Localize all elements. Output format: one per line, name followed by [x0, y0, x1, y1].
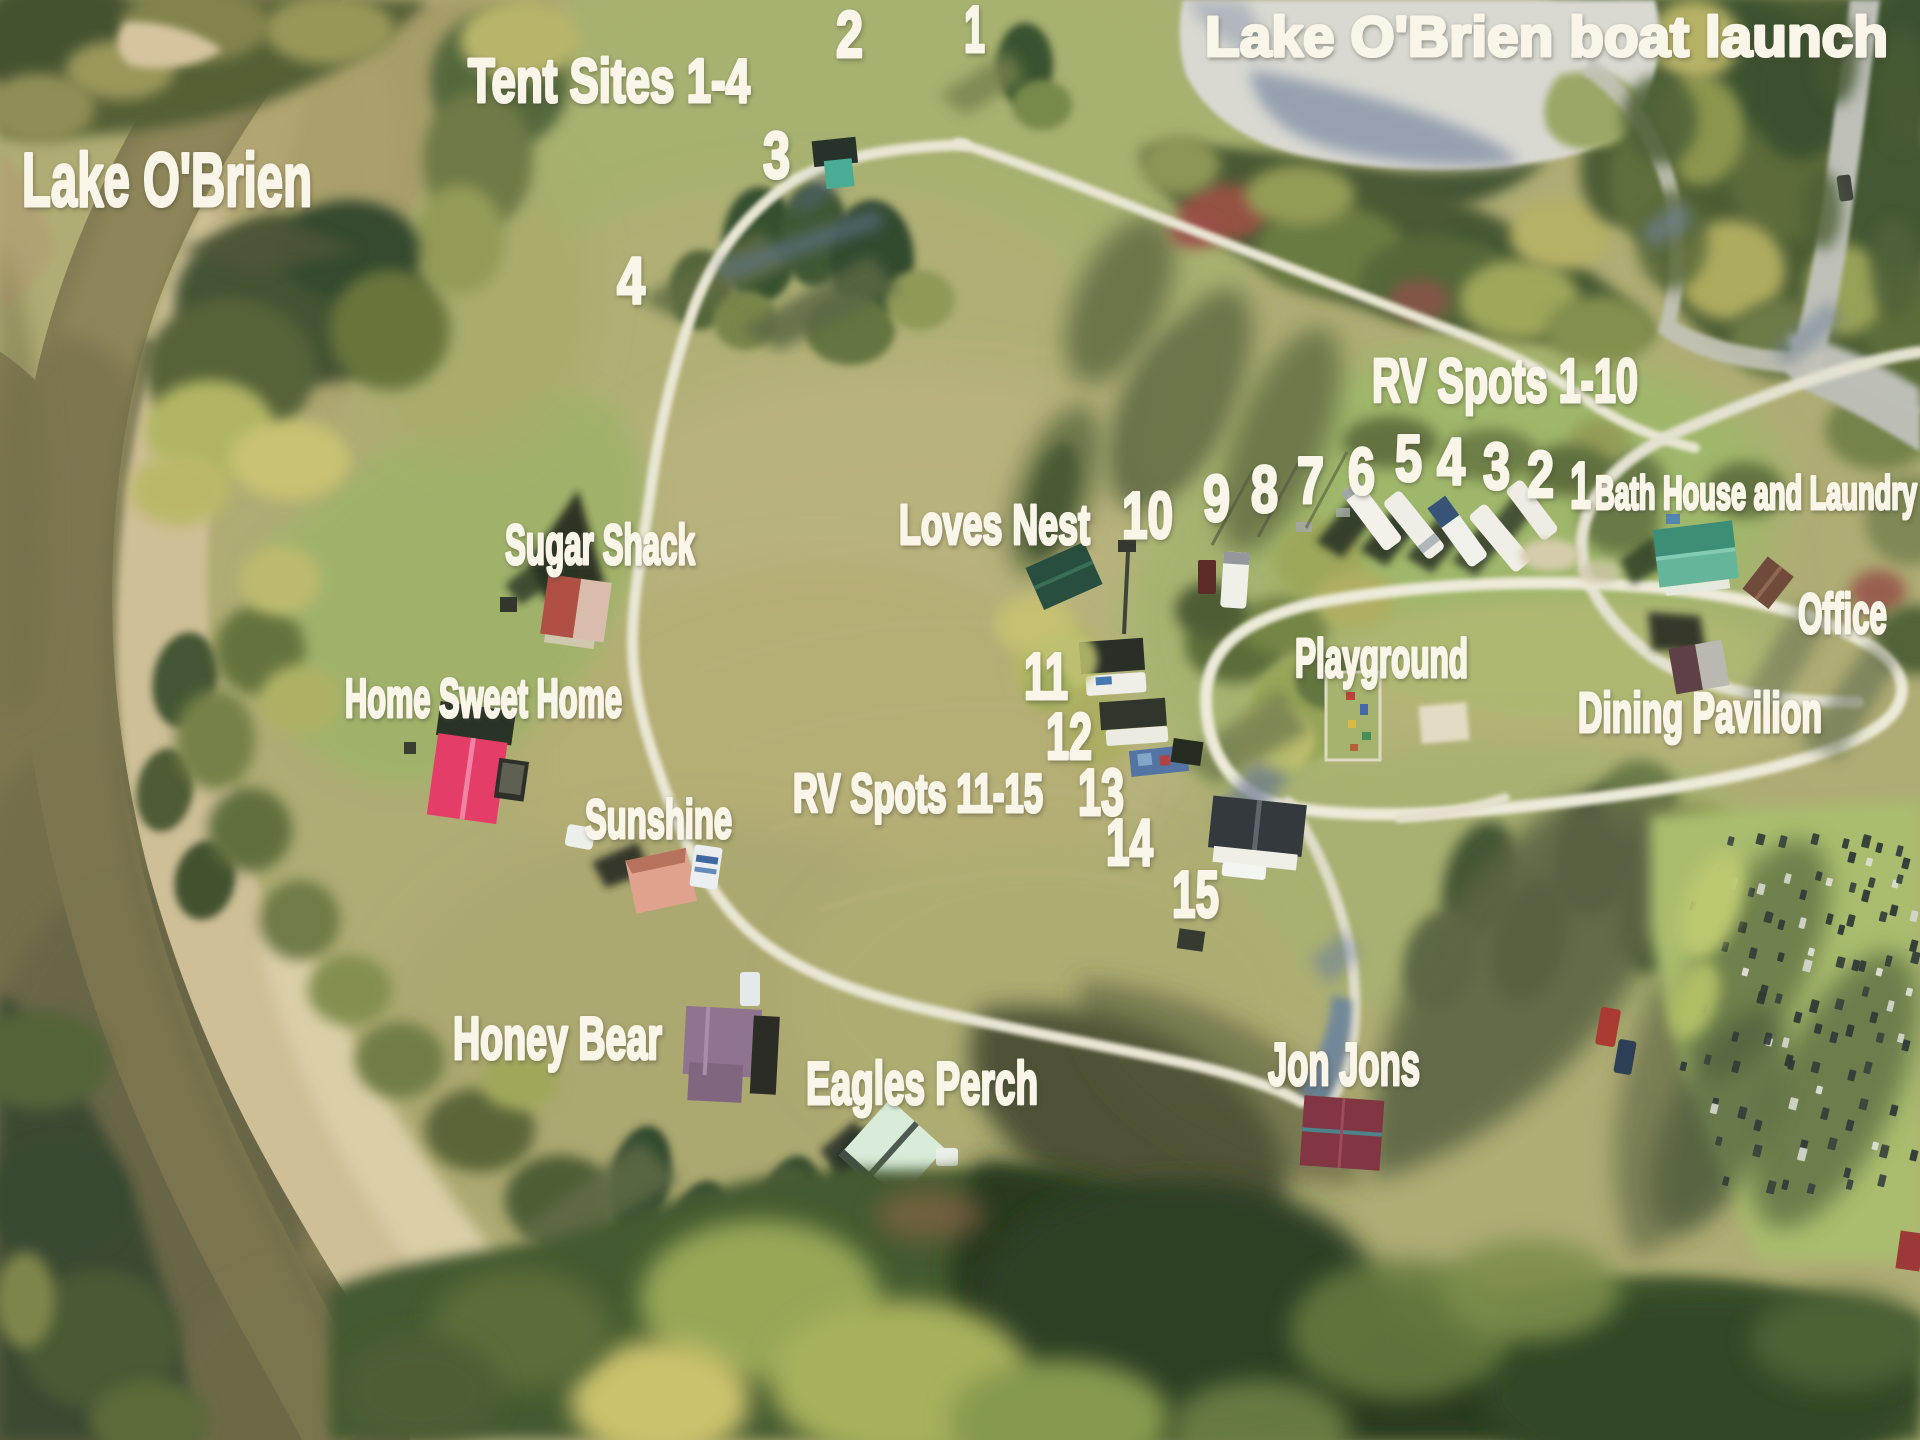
svg-text:6: 6 [1348, 434, 1375, 508]
svg-text:Lake O'Brien boat launch: Lake O'Brien boat launch [1205, 5, 1888, 69]
svg-text:15: 15 [1172, 857, 1219, 931]
svg-text:9: 9 [1203, 461, 1230, 535]
svg-text:Loves Nest: Loves Nest [899, 493, 1090, 557]
svg-text:1: 1 [964, 0, 985, 66]
svg-text:RV Spots 1-10: RV Spots 1-10 [1372, 347, 1638, 416]
svg-text:14: 14 [1106, 805, 1153, 879]
svg-text:10: 10 [1122, 478, 1173, 552]
svg-text:4: 4 [617, 243, 645, 317]
svg-text:Office: Office [1798, 582, 1887, 646]
svg-text:Home Sweet Home: Home Sweet Home [345, 667, 622, 729]
svg-text:RV Spots 11-15: RV Spots 11-15 [793, 762, 1043, 824]
svg-text:Eagles Perch: Eagles Perch [806, 1050, 1038, 1117]
svg-text:7: 7 [1297, 443, 1324, 517]
svg-text:2: 2 [836, 0, 863, 71]
svg-text:1: 1 [1570, 448, 1591, 522]
svg-text:3: 3 [763, 118, 790, 192]
svg-text:2: 2 [1527, 437, 1554, 511]
svg-text:Sunshine: Sunshine [585, 788, 732, 850]
svg-text:3: 3 [1483, 429, 1510, 503]
svg-text:Jon Jons: Jon Jons [1268, 1031, 1420, 1098]
svg-text:Sugar Shack: Sugar Shack [505, 513, 695, 577]
svg-text:Honey Bear: Honey Bear [453, 1005, 662, 1072]
svg-text:5: 5 [1395, 421, 1422, 495]
svg-text:Tent Sites 1-4: Tent Sites 1-4 [468, 47, 750, 116]
svg-text:Playground: Playground [1295, 627, 1468, 689]
svg-text:Dining Pavilion: Dining Pavilion [1578, 681, 1822, 745]
svg-text:Lake O'Brien: Lake O'Brien [22, 138, 312, 223]
svg-text:8: 8 [1251, 452, 1278, 526]
svg-text:4: 4 [1437, 424, 1465, 498]
svg-text:Bath House and Laundry: Bath House and Laundry [1595, 466, 1917, 519]
